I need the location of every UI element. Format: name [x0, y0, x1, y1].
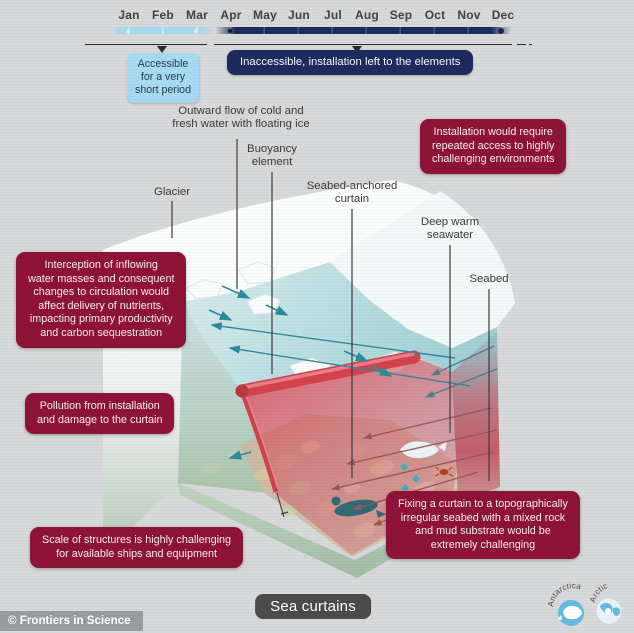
month-label: Jul — [316, 8, 350, 22]
callout-interception-nutrients: Interception of inflowing water masses a… — [16, 252, 186, 348]
label-seabed-anchored-curtain: Seabed-anchored curtain — [307, 180, 398, 207]
bar-dot — [126, 29, 130, 33]
accessible-label-box: Accessible for a very short period — [127, 53, 199, 103]
bar-dot — [498, 28, 504, 34]
infographic-sea-curtains: { "timeline": { "months": ["Jan","Feb","… — [0, 0, 634, 633]
label-outward-flow: Outward flow of cold and fresh water wit… — [172, 105, 309, 132]
accessible-pointer — [157, 46, 167, 53]
label-glacier: Glacier — [154, 186, 190, 199]
month-label: Oct — [418, 8, 452, 22]
bar-ticks — [215, 27, 512, 34]
month-label: Jun — [282, 8, 316, 22]
month-label: Mar — [180, 8, 214, 22]
region-icons: Antarctica Arctic — [528, 576, 634, 633]
month-label: Nov — [452, 8, 486, 22]
month-label: Aug — [350, 8, 384, 22]
figure-title-chip: Sea curtains — [255, 594, 371, 619]
label-seabed: Seabed — [469, 273, 508, 286]
month-label: Apr — [214, 8, 248, 22]
callout-pollution: Pollution from installation and damage t… — [25, 393, 174, 434]
inaccessible-label-box: Inaccessible, installation left to the e… — [227, 50, 473, 75]
month-label: Sep — [384, 8, 418, 22]
bar-dot — [228, 29, 232, 33]
bracket-dash — [529, 44, 532, 45]
callout-installation-access: Installation would require repeated acce… — [420, 119, 566, 174]
month-label: May — [248, 8, 282, 22]
credit-badge: © Frontiers in Science — [0, 611, 143, 631]
callout-scale-of-structures: Scale of structures is highly challengin… — [30, 527, 243, 568]
month-label: Jan — [112, 8, 146, 22]
label-deep-warm-seawater: Deep warm seawater — [421, 216, 479, 243]
bar-dot — [194, 29, 198, 33]
timeline-months: Jan Feb Mar Apr May Jun Jul Aug Sep Oct … — [112, 8, 520, 22]
label-buoyancy-element: Buoyancy element — [247, 143, 297, 170]
arctic-icon: Arctic — [588, 581, 621, 623]
antarctica-icon: Antarctica — [546, 581, 584, 626]
accessible-bracket — [85, 44, 207, 45]
month-label: Feb — [146, 8, 180, 22]
month-label: Dec — [486, 8, 520, 22]
inaccessible-period-bar — [215, 27, 512, 34]
callout-seabed-fixing: Fixing a curtain to a topographically ir… — [386, 491, 580, 559]
inaccessible-bracket — [214, 44, 512, 45]
bracket-dash — [517, 44, 526, 45]
accessible-period-bar — [112, 27, 213, 34]
